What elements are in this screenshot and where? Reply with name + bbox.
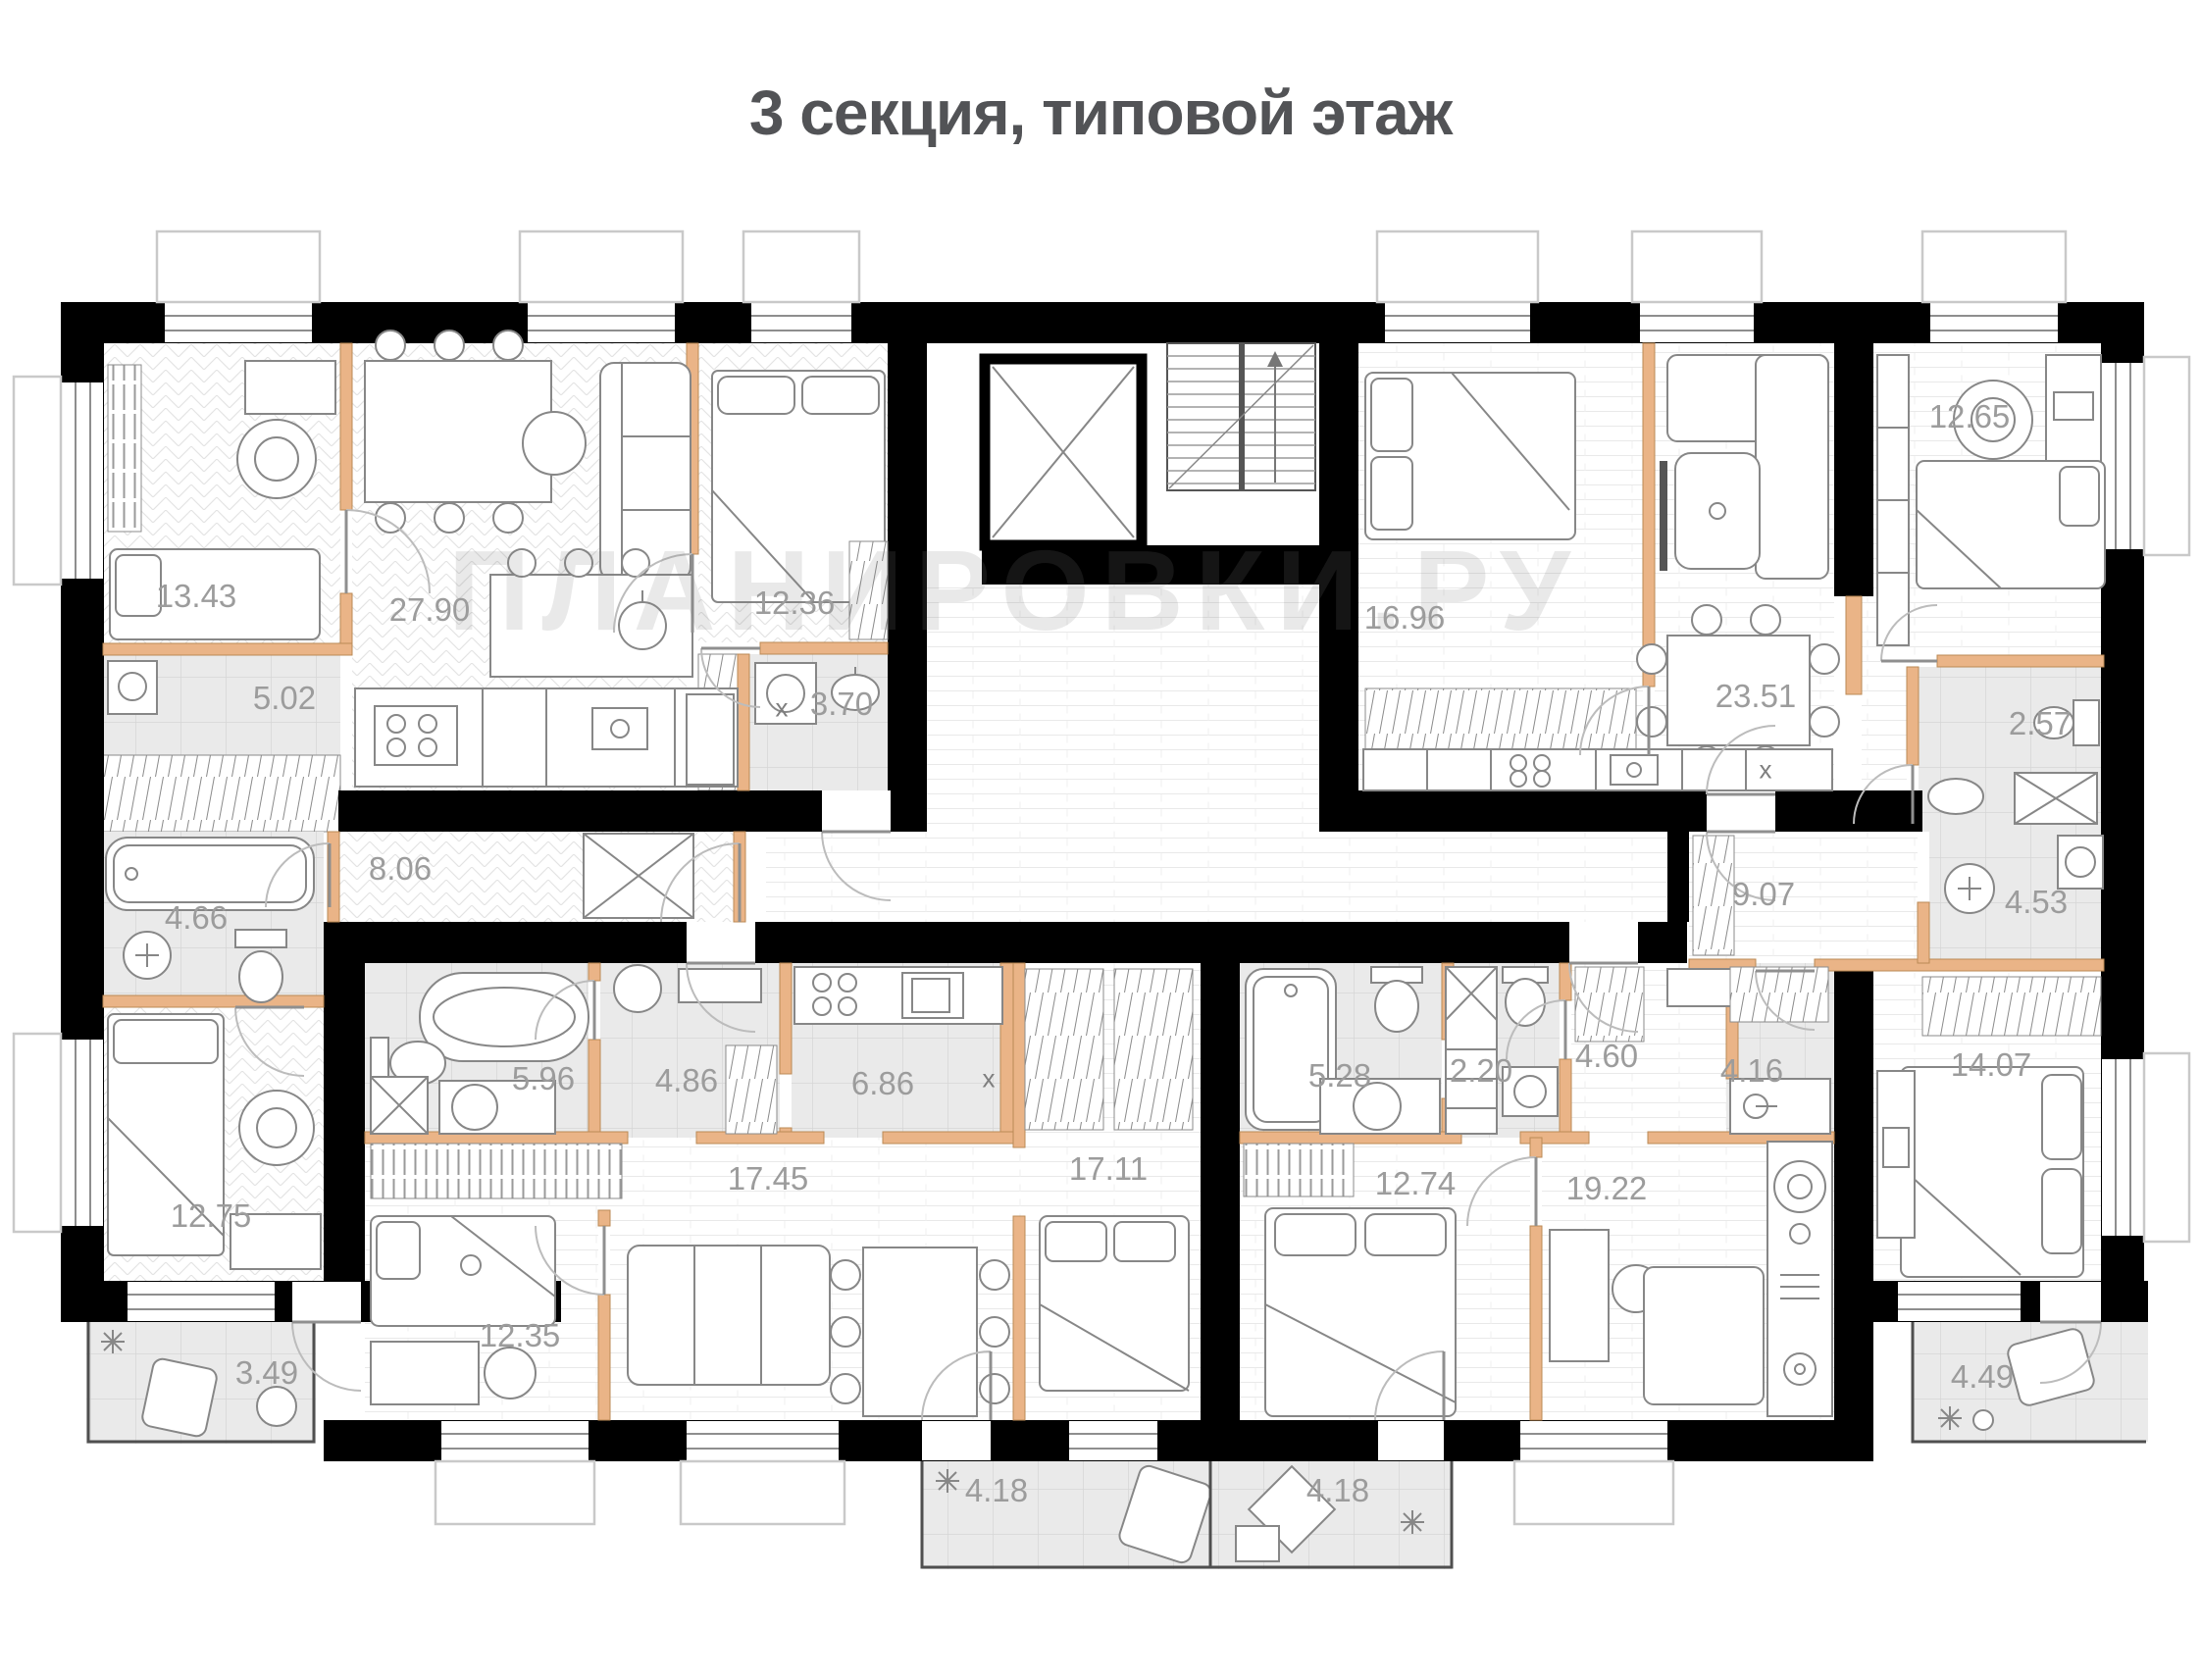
- room-area-label: 4.16: [1720, 1052, 1783, 1090]
- room-area-label: 12.36: [754, 585, 836, 622]
- room-area-label: 2.57: [2009, 705, 2072, 742]
- room-area-label: 5.96: [512, 1060, 575, 1097]
- room-area-label: 12.74: [1375, 1165, 1457, 1202]
- kitchen-x-mark: x: [776, 693, 789, 724]
- room-area-label: 4.18: [1306, 1472, 1369, 1509]
- room-area-label: 17.11: [1069, 1150, 1148, 1188]
- room-area-label: 8.06: [369, 850, 432, 888]
- room-area-label: 9.07: [1732, 876, 1795, 913]
- kitchen-x-mark: x: [1760, 755, 1772, 786]
- room-area-label: 4.86: [655, 1062, 718, 1099]
- room-area-label: 2.20: [1450, 1052, 1512, 1090]
- room-area-label: 3.70: [810, 686, 873, 723]
- floor-plan: ПЛАНИРОВКИ.РУ 13.4327.9012.365.023.708.0…: [0, 0, 2201, 1680]
- room-area-label: 12.65: [1929, 398, 2011, 435]
- room-area-label: 12.75: [171, 1197, 252, 1235]
- elevator-icon: [985, 359, 1142, 545]
- room-area-label: 4.18: [965, 1472, 1028, 1509]
- room-area-label: 4.53: [2005, 884, 2068, 921]
- room-area-label: 5.28: [1308, 1057, 1371, 1095]
- kitchen-x-mark: x: [983, 1064, 996, 1095]
- floorplan-drawing: [0, 0, 2201, 1680]
- room-area-label: 16.96: [1364, 599, 1446, 636]
- stairs-icon: [1167, 343, 1315, 490]
- room-area-label: 4.66: [165, 899, 228, 937]
- room-area-label: 23.51: [1715, 678, 1797, 715]
- room-area-label: 12.35: [480, 1317, 561, 1354]
- room-area-label: 27.90: [389, 591, 471, 629]
- room-area-label: 5.02: [253, 680, 316, 717]
- floorplan-page: 3 секция, типовой этаж: [0, 0, 2201, 1680]
- room-area-label: 4.60: [1575, 1038, 1638, 1075]
- room-area-label: 17.45: [728, 1160, 809, 1197]
- room-area-label: 19.22: [1566, 1170, 1648, 1207]
- room-area-label: 6.86: [851, 1065, 914, 1102]
- room-area-label: 13.43: [156, 578, 237, 615]
- room-area-label: 3.49: [235, 1354, 298, 1392]
- room-area-label: 14.07: [1951, 1046, 2032, 1084]
- room-area-label: 4.49: [1951, 1358, 2014, 1396]
